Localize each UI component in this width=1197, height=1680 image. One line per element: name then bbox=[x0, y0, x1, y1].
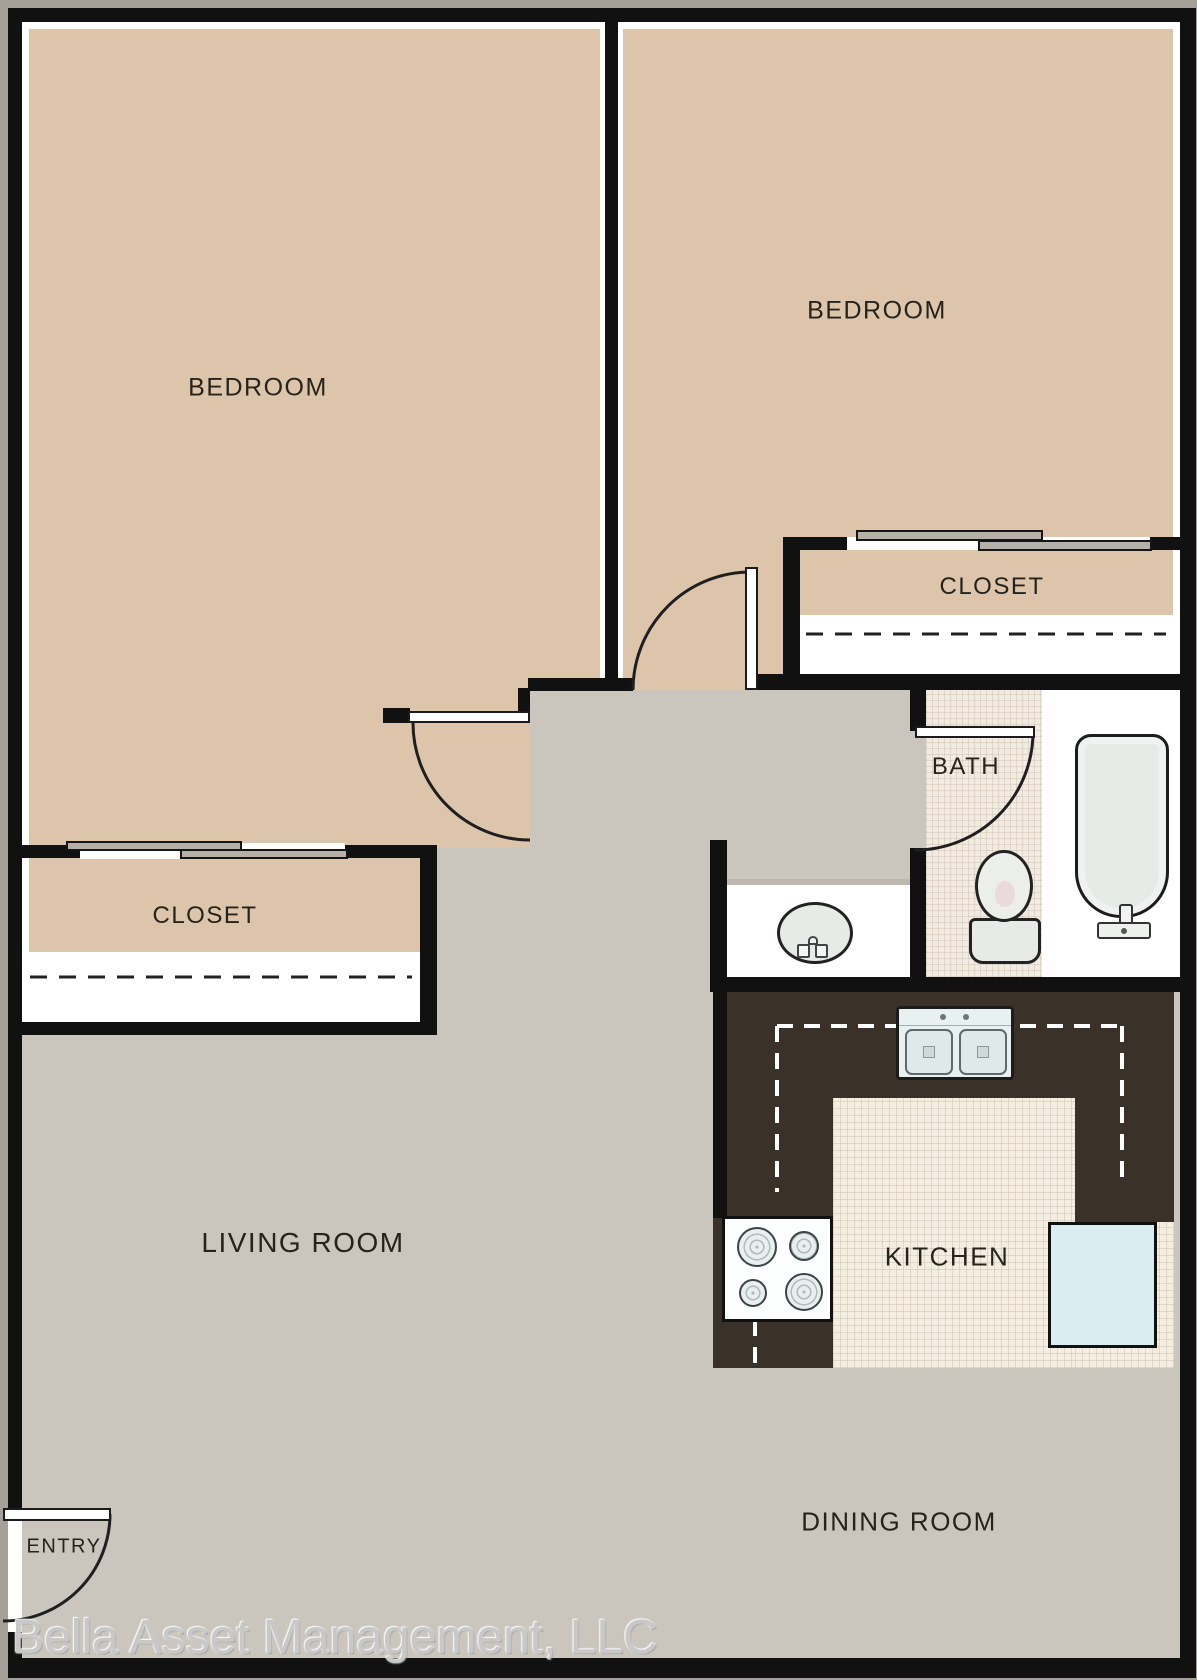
room-label-bath: BATH bbox=[932, 753, 1000, 781]
stove-burner-bl bbox=[739, 1279, 767, 1307]
inner-wall-edge-left bbox=[22, 22, 29, 1035]
closet-left-sliding-panel-b bbox=[180, 849, 348, 859]
bedroom-left-floor-lower bbox=[29, 678, 530, 848]
bath-left-wall-upper bbox=[910, 690, 926, 731]
hall-top-wall bbox=[528, 678, 633, 691]
bath-door-leaf bbox=[915, 726, 1035, 738]
closet-bath-top-wall bbox=[745, 674, 1180, 690]
room-label-closet-right: CLOSET bbox=[939, 573, 1044, 601]
kitchen-floor-tile bbox=[833, 1098, 1075, 1368]
closet-right-top-wall-left bbox=[783, 537, 847, 550]
refrigerator bbox=[1048, 1222, 1157, 1348]
bedroom-right-floor-lower bbox=[618, 29, 783, 690]
outer-wall-top bbox=[8, 8, 1196, 22]
room-label-bedroom-left: BEDROOM bbox=[188, 374, 328, 403]
hall-step-wall bbox=[518, 688, 530, 713]
bathtub-drain-dot bbox=[1121, 928, 1127, 934]
bedroom-left-door-jamb bbox=[383, 708, 410, 723]
room-label-bedroom-right: BEDROOM bbox=[807, 297, 947, 326]
outer-wall-right bbox=[1180, 8, 1196, 1678]
kitchen-left-wall bbox=[713, 992, 727, 1218]
room-label-living-room: LIVING ROOM bbox=[201, 1227, 404, 1259]
toilet-tank bbox=[969, 918, 1041, 964]
bedroom-left-door-leaf bbox=[408, 711, 530, 723]
closet-left-right-wall bbox=[420, 845, 437, 1035]
sink-faucet-dot-left bbox=[940, 1014, 946, 1020]
vanity-faucet-left bbox=[797, 944, 810, 958]
sink-basin-right bbox=[959, 1029, 1007, 1075]
closet-right-sliding-panel-b bbox=[978, 540, 1152, 551]
closet-right-top-wall-right bbox=[1150, 537, 1180, 550]
inner-wall-edge-right bbox=[1173, 22, 1180, 977]
entry-door-leaf bbox=[3, 1508, 111, 1521]
room-label-entry: ENTRY bbox=[27, 1536, 102, 1559]
kitchen-double-sink bbox=[896, 1006, 1014, 1080]
closet-left-bottom-wall bbox=[22, 1022, 437, 1035]
sink-faucet-dot-right bbox=[963, 1014, 969, 1020]
closet-right-left-wall bbox=[783, 537, 800, 690]
closet-right-floor-white bbox=[800, 615, 1174, 674]
vanity-faucet-right bbox=[815, 944, 828, 958]
bedroom-left-floor bbox=[29, 29, 605, 678]
bath-left-wall-lower bbox=[910, 848, 926, 977]
room-label-kitchen: KITCHEN bbox=[885, 1242, 1010, 1273]
bedroom-divider-wall bbox=[600, 22, 623, 690]
sink-basin-left bbox=[905, 1029, 953, 1075]
watermark-text: Bella Asset Management, LLC bbox=[12, 1610, 658, 1665]
toilet-bowl-inner bbox=[995, 881, 1015, 907]
sink-ledge-line bbox=[899, 1025, 1011, 1026]
stove-burner-tl bbox=[737, 1227, 777, 1267]
room-label-closet-left: CLOSET bbox=[152, 902, 257, 930]
sink-drain-left bbox=[923, 1046, 935, 1058]
toilet-bowl bbox=[975, 850, 1033, 922]
room-label-dining-room: DINING ROOM bbox=[801, 1507, 997, 1538]
outer-wall-left-upper bbox=[8, 8, 22, 1512]
floor-plan: BEDROOM BEDROOM CLOSET BATH CLOSET LIVIN… bbox=[0, 0, 1197, 1680]
sink-drain-right bbox=[977, 1046, 989, 1058]
bathtub bbox=[1075, 734, 1169, 918]
vanity-left-wall bbox=[710, 840, 727, 977]
bathtub-faucet-base bbox=[1097, 922, 1151, 939]
kitchen-top-wall bbox=[710, 977, 1180, 992]
closet-left-floor-white bbox=[22, 952, 420, 1022]
stove-burner-br bbox=[785, 1273, 823, 1311]
stove bbox=[722, 1216, 833, 1322]
stove-burner-tr bbox=[789, 1231, 819, 1261]
bedroom-right-door-leaf bbox=[745, 567, 758, 690]
